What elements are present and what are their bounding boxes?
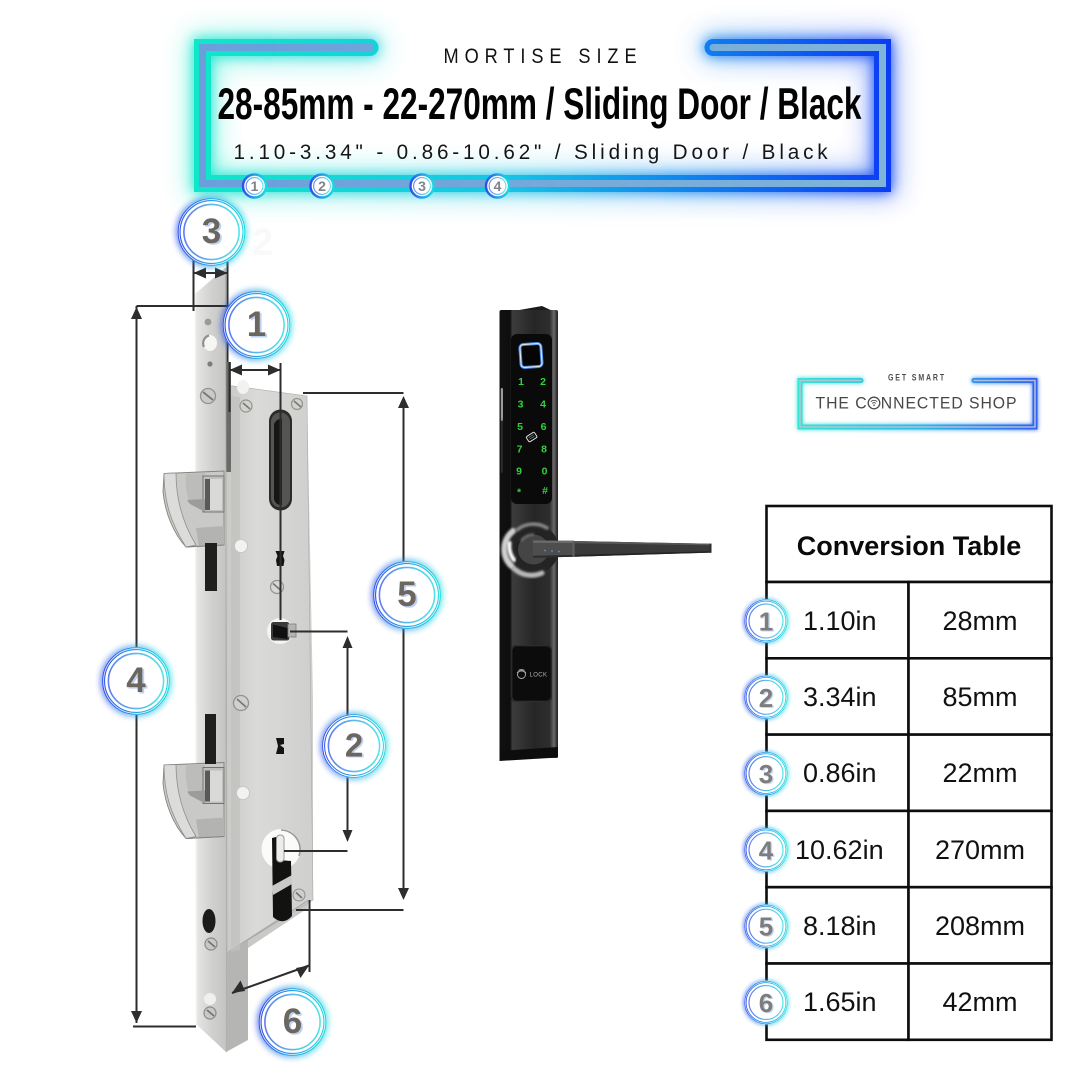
svg-text:1: 1: [251, 178, 259, 194]
svg-text:3.34in: 3.34in: [803, 682, 877, 712]
svg-text:1: 1: [518, 376, 524, 388]
svg-text:Conversion Table: Conversion Table: [797, 531, 1022, 561]
svg-text:7: 7: [517, 444, 523, 456]
svg-text:MORTISE SIZE: MORTISE SIZE: [444, 44, 643, 68]
svg-text:28-85mm - 22-270mm / Sliding D: 28-85mm - 22-270mm / Sliding Door / Blac…: [218, 80, 862, 129]
svg-text:28mm: 28mm: [942, 606, 1017, 636]
svg-text:4: 4: [126, 661, 146, 700]
svg-text:4: 4: [759, 835, 774, 865]
svg-text:208mm: 208mm: [935, 911, 1025, 941]
svg-text:6: 6: [759, 988, 773, 1018]
svg-text:10.62in: 10.62in: [795, 835, 884, 865]
svg-text:#: #: [542, 485, 548, 497]
svg-text:1.10-3.34" - 0.86-10.62" / Sli: 1.10-3.34" - 0.86-10.62" / Sliding Door …: [234, 140, 832, 164]
svg-text:THE CONNECTED SHOP: THE CONNECTED SHOP: [816, 395, 1018, 413]
svg-text:GET SMART: GET SMART: [888, 373, 946, 383]
svg-text:4: 4: [494, 178, 502, 194]
svg-text:2: 2: [318, 178, 326, 194]
svg-text:1: 1: [759, 607, 773, 637]
svg-text:85mm: 85mm: [942, 682, 1017, 712]
svg-text:9: 9: [516, 466, 522, 478]
svg-text:2: 2: [252, 222, 273, 264]
svg-text:270mm: 270mm: [935, 835, 1025, 865]
svg-text:5: 5: [517, 421, 523, 433]
svg-text:1.10in: 1.10in: [803, 606, 877, 636]
svg-text:22mm: 22mm: [942, 758, 1017, 788]
svg-text:1: 1: [247, 305, 266, 344]
svg-text:0: 0: [542, 466, 548, 478]
svg-text:0.86in: 0.86in: [803, 758, 877, 788]
svg-text:6: 6: [541, 421, 547, 433]
svg-text:5: 5: [397, 575, 416, 614]
svg-text:8: 8: [541, 444, 547, 456]
svg-text:3: 3: [759, 759, 773, 789]
svg-text:1.65in: 1.65in: [803, 987, 877, 1017]
svg-text:2: 2: [345, 727, 363, 764]
svg-text:3: 3: [518, 399, 524, 411]
svg-text:4: 4: [540, 399, 546, 411]
svg-text:8.18in: 8.18in: [803, 911, 877, 941]
svg-text:2: 2: [759, 683, 773, 713]
svg-text:3: 3: [418, 178, 426, 194]
svg-text:LOCK: LOCK: [530, 673, 548, 679]
svg-text:42mm: 42mm: [942, 987, 1017, 1017]
svg-text:6: 6: [283, 1002, 302, 1041]
svg-text:3: 3: [202, 212, 221, 251]
svg-text:2: 2: [540, 376, 546, 388]
svg-text:5: 5: [759, 912, 773, 942]
